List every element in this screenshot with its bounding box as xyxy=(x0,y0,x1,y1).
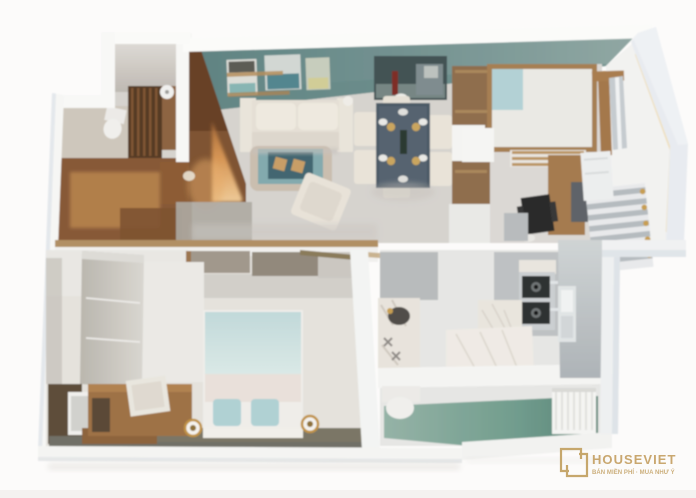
svg-text:HOUSEVIET: HOUSEVIET xyxy=(592,452,678,467)
svg-text:BÁN MIỀN PHÍ · MUA NHƯ Ý: BÁN MIỀN PHÍ · MUA NHƯ Ý xyxy=(592,468,675,476)
